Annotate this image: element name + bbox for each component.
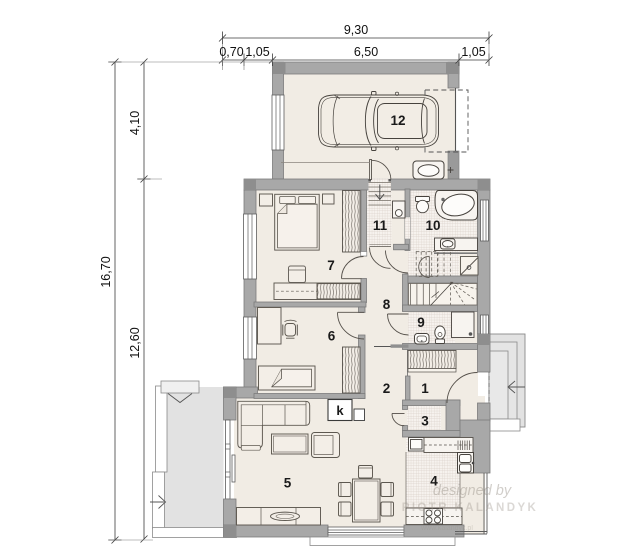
svg-text:0,70: 0,70 bbox=[219, 45, 243, 59]
svg-text:2: 2 bbox=[383, 381, 391, 396]
svg-text:4,10: 4,10 bbox=[128, 111, 142, 135]
svg-text:6,50: 6,50 bbox=[354, 45, 378, 59]
svg-text:9,30: 9,30 bbox=[344, 23, 368, 37]
svg-text:PIOTR KALANDYK: PIOTR KALANDYK bbox=[402, 502, 538, 514]
svg-text:10: 10 bbox=[425, 218, 440, 233]
svg-text:1,05: 1,05 bbox=[461, 45, 485, 59]
svg-text:k: k bbox=[336, 403, 344, 418]
svg-text:www.kalandyk.pl: www.kalandyk.pl bbox=[420, 525, 473, 532]
svg-text:6: 6 bbox=[328, 329, 336, 344]
svg-text:9: 9 bbox=[417, 315, 425, 330]
svg-text:designed by: designed by bbox=[433, 483, 512, 499]
svg-text:11: 11 bbox=[373, 218, 388, 233]
svg-text:3: 3 bbox=[421, 414, 429, 429]
svg-text:7: 7 bbox=[327, 258, 335, 273]
svg-text:1: 1 bbox=[421, 381, 429, 396]
svg-text:12: 12 bbox=[390, 113, 405, 128]
svg-text:1,05: 1,05 bbox=[245, 45, 269, 59]
svg-text:16,70: 16,70 bbox=[99, 256, 113, 287]
svg-text:5: 5 bbox=[284, 476, 292, 491]
svg-text:12,60: 12,60 bbox=[128, 327, 142, 358]
svg-text:8: 8 bbox=[383, 297, 391, 312]
